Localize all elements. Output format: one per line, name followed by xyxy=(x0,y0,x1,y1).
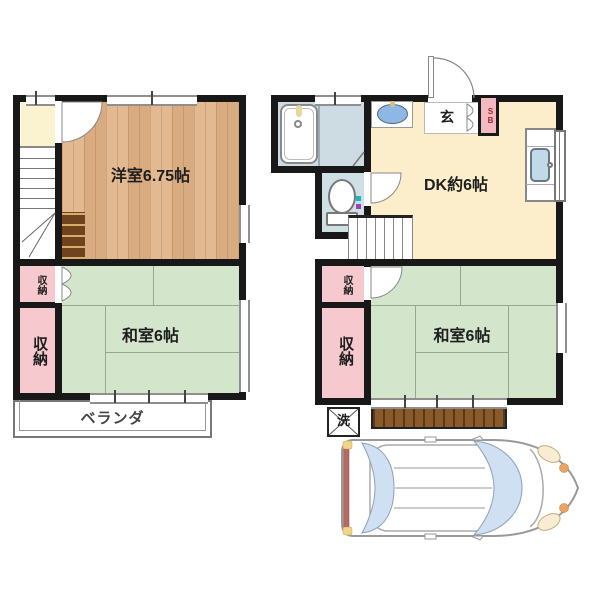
window-2f-top-left xyxy=(26,95,55,106)
entry-door-arc xyxy=(434,58,474,98)
wall-1f-lower-left xyxy=(315,259,322,405)
washbasin-bowl xyxy=(377,104,408,124)
wall-closet-div-1f xyxy=(315,302,371,308)
car-body xyxy=(342,440,578,536)
car-windshield xyxy=(474,441,522,535)
bath-drain-icon xyxy=(294,120,302,128)
entry-door-opening xyxy=(428,95,472,102)
kitchen-window-line xyxy=(559,131,560,201)
toilet-bowl xyxy=(328,179,356,214)
western-room-door-opening xyxy=(55,101,62,143)
mid-wall-2f xyxy=(13,259,246,266)
toilet-accessory-cyan xyxy=(356,196,361,201)
closet-large-label-2f: 収納 xyxy=(26,324,48,378)
kitchen-window xyxy=(554,130,566,202)
japanese-room-label-1f: 和室6帖 xyxy=(371,328,553,346)
staircase-1f xyxy=(348,215,413,259)
window-2f-right-western xyxy=(239,205,250,243)
car-mirror-top xyxy=(471,436,483,440)
dk-label: DK約6帖 xyxy=(371,177,541,195)
car-illustration xyxy=(342,436,578,540)
car-indicator-top xyxy=(560,464,569,473)
wall-toilet-bottom xyxy=(315,232,348,239)
bath-faucet-icon xyxy=(296,105,302,117)
western-room-label: 洋室6.75帖 xyxy=(62,168,239,186)
car-corner-light-bottom xyxy=(343,527,352,535)
closet-large-label-1f: 収納 xyxy=(332,324,354,378)
car-rear-window xyxy=(362,443,394,533)
closet-small-label-2f: 収納 xyxy=(29,271,46,299)
car-handle-bottom xyxy=(425,534,436,539)
japanese-room-door-opening-1f xyxy=(364,267,371,300)
veranda-label: ベランダ xyxy=(13,410,212,427)
stair-top-steps xyxy=(62,212,85,259)
window-1f-bottom xyxy=(371,398,507,409)
bath-divider-line xyxy=(318,102,320,166)
wall-bath-bottom xyxy=(271,166,371,173)
wall-1f-mid xyxy=(315,259,563,266)
car-headlight-top xyxy=(535,442,563,466)
closet-small-label-1f: 収納 xyxy=(335,271,352,299)
upper-closet-cream xyxy=(21,102,55,146)
car-indicator-bottom xyxy=(560,504,569,513)
car-roof-lines xyxy=(394,468,492,508)
car-tail-light xyxy=(344,449,350,527)
washroom-door-opening xyxy=(364,172,371,206)
car-handle-top xyxy=(425,437,436,442)
car-mirror-bottom xyxy=(471,536,483,540)
wall-toilet-left xyxy=(315,173,322,239)
closet-divider-line xyxy=(20,146,55,148)
kitchen-faucet-icon xyxy=(547,162,553,168)
toilet-accessory-purple xyxy=(356,204,361,209)
washbasin-faucet-icon xyxy=(390,101,395,107)
car-corner-light-top xyxy=(343,441,352,449)
wall-bath-left xyxy=(271,95,278,173)
entrance-label: 玄 xyxy=(424,109,470,125)
floorplan-canvas: 洋室6.75帖 和室6帖 収納 収納 ベランダ DK約6帖 玄 SB 和室6帖 … xyxy=(0,0,600,600)
window-1f-right-japanese xyxy=(556,303,567,353)
car-cabin-outline xyxy=(370,445,504,531)
japanese-room-label-2f: 和室6帖 xyxy=(62,328,239,346)
kitchen-counter-line1 xyxy=(526,146,555,147)
entry-door-leaf xyxy=(428,56,434,98)
laundry-label: 洗 xyxy=(327,414,360,429)
window-1f-top-bath xyxy=(315,95,361,106)
shoebox-label: SB xyxy=(482,101,495,131)
closet-fold-door-opening-2f xyxy=(55,266,62,303)
window-2f-right-japanese xyxy=(239,300,250,392)
stair-room-wall-2f xyxy=(55,102,62,393)
car-headlight-bottom xyxy=(535,510,563,534)
car-hood-line xyxy=(530,449,543,527)
